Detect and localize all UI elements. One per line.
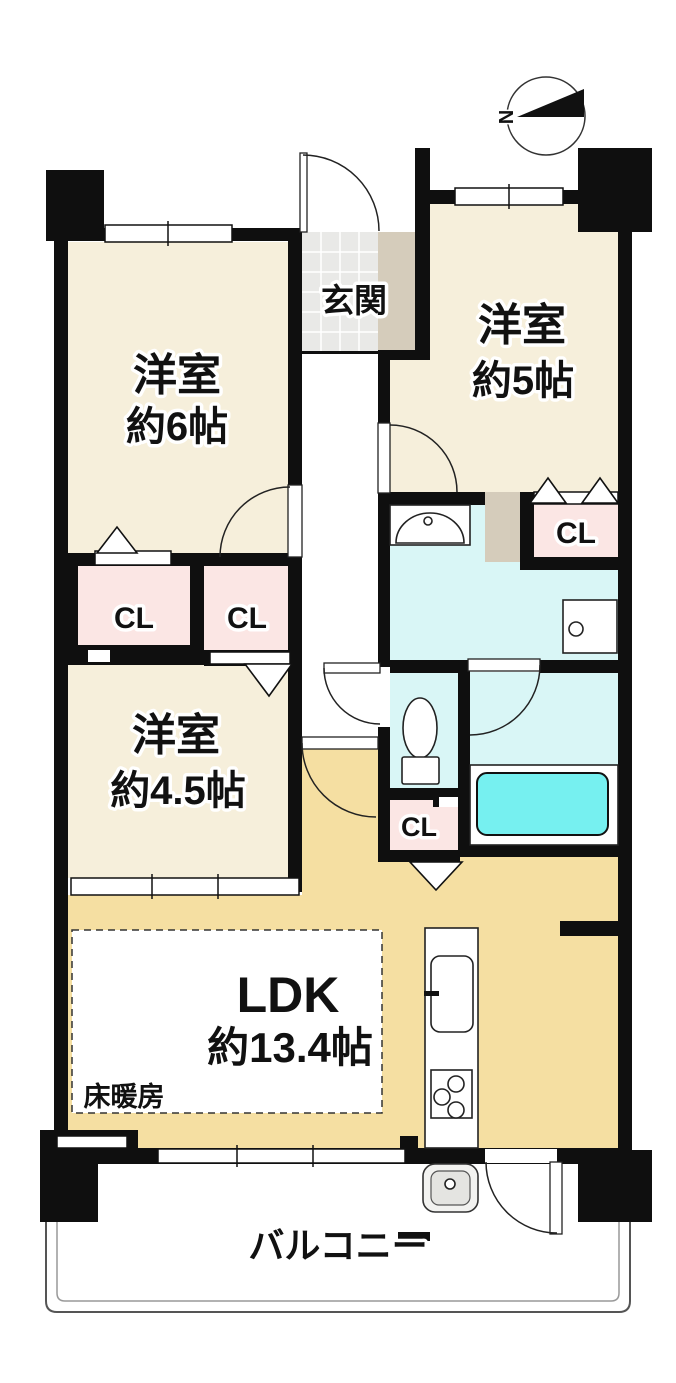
west6-label: 洋室 xyxy=(133,350,221,400)
column-bottom-right xyxy=(578,1150,652,1222)
west6-door-leaf xyxy=(288,485,302,557)
west5-label: 洋室 xyxy=(478,300,566,350)
west5-size: 約5帖 xyxy=(472,359,574,403)
toilet-door-leaf xyxy=(324,663,380,673)
bath-door-leaf xyxy=(468,659,540,671)
column-top-right xyxy=(578,148,652,232)
closet-hall-label: CL xyxy=(401,812,437,842)
wall-notch-hall-closet xyxy=(439,797,458,807)
closet-west45-label: CL xyxy=(227,602,267,635)
balcony-label: バルコニー xyxy=(248,1225,427,1266)
balcony-door-arc xyxy=(486,1162,557,1233)
toilet-door-gap xyxy=(378,667,390,727)
closet-west5-label: CL xyxy=(556,517,596,550)
kitchen-faucet xyxy=(424,991,439,996)
washing-machine xyxy=(563,600,617,653)
kitchen-counter xyxy=(424,928,478,1148)
ldk-floor-corridor xyxy=(302,744,378,895)
toilet-fixture xyxy=(402,698,439,784)
wall-notch-closet-row xyxy=(88,650,110,662)
west45-label: 洋室 xyxy=(132,710,220,760)
west5-door-leaf xyxy=(378,423,390,493)
ldk-door-leaf xyxy=(302,737,378,749)
column-bottom-left xyxy=(40,1150,98,1222)
compass: N xyxy=(494,77,585,155)
hallway-floor xyxy=(302,352,378,744)
window-ldk-balcony xyxy=(158,1149,405,1163)
ldk-label: LDK xyxy=(237,967,340,1023)
compass-north-label: N xyxy=(494,110,516,124)
closet-west6-label: CL xyxy=(114,602,154,635)
balcony-sink xyxy=(423,1164,478,1212)
floor-heating-label: 床暖房 xyxy=(84,1081,165,1112)
ldk-size: 約13.4帖 xyxy=(207,1024,373,1071)
column-top-left xyxy=(46,170,104,236)
balcony-door-leaf xyxy=(550,1162,562,1234)
balcony-door-gap xyxy=(485,1149,557,1163)
window-ldk-west xyxy=(57,1136,127,1148)
west6-size: 約6帖 xyxy=(126,405,228,449)
entrance-label: 玄関 xyxy=(321,282,387,319)
slider-west45-ldk xyxy=(71,878,299,895)
washbasin xyxy=(390,505,470,545)
floor-plan-svg: N 玄関 洋室 約6帖 洋室 約5帖 洋室 約4.5帖 CL CL CL CL … xyxy=(0,0,676,1383)
floor-plan-page: N 玄関 洋室 約6帖 洋室 約5帖 洋室 約4.5帖 CL CL CL CL … xyxy=(0,0,676,1383)
closet-west45-front xyxy=(210,652,290,664)
bathtub xyxy=(470,765,618,845)
west45-size: 約4.5帖 xyxy=(110,769,246,813)
washroom-entry-strip xyxy=(485,492,520,562)
entrance-door-arc xyxy=(303,155,379,231)
entrance-door-leaf xyxy=(300,153,307,232)
